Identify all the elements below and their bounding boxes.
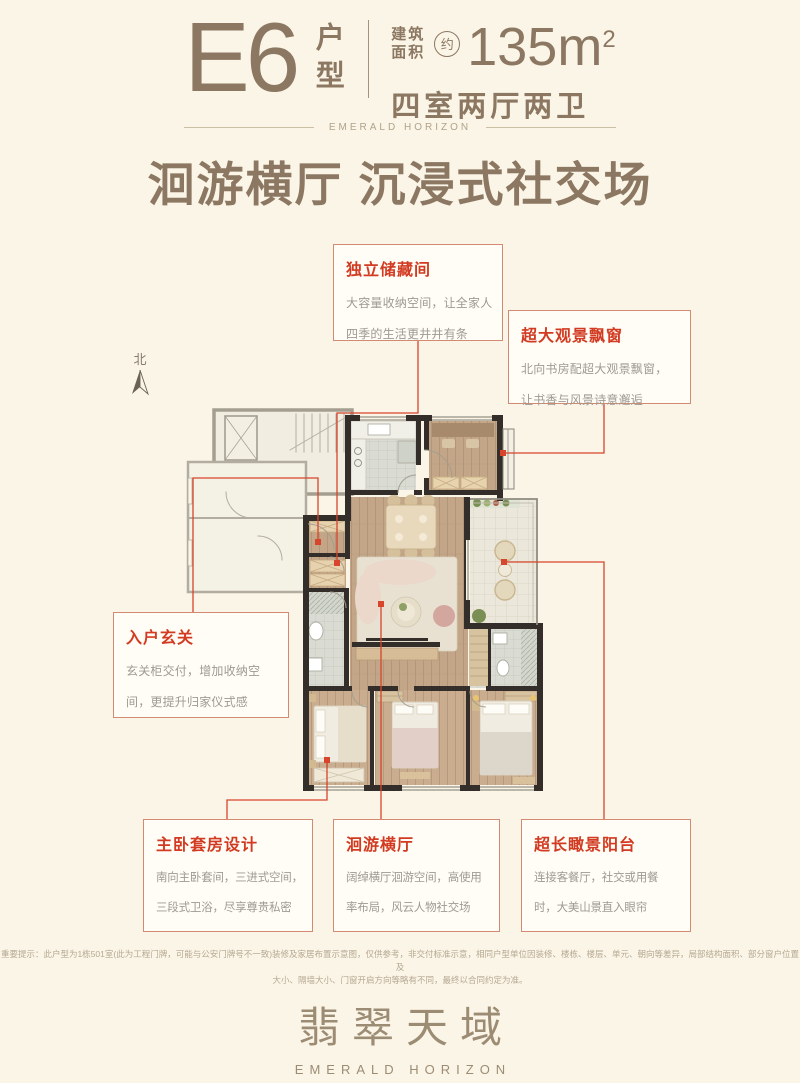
callout-text-line: 阔绰横厅洄游空间，高使用	[346, 869, 487, 885]
callout-text-line: 玄关柜交付，增加收纳空	[126, 662, 276, 679]
callout-title: 入户玄关	[126, 624, 276, 648]
leader-baywindow	[506, 404, 604, 453]
callout-master: 主卧套房设计 南向主卧套间，三进式空间， 三段式卫浴，尽享尊贵私密	[143, 819, 313, 932]
callout-storage: 独立储藏间 大容量收纳空间，让全家人 四季的生活更井井有条	[333, 244, 503, 341]
callout-balcony: 超长瞰景阳台 连接客餐厅，社交或用餐 时，大美山景直入眼帘	[521, 819, 691, 932]
bay-window	[503, 429, 514, 489]
callout-hall: 洄游横厅 阔绰横厅洄游空间，高使用 率布局，风云人物社交场	[333, 819, 500, 932]
callout-text-line: 连接客餐厅，社交或用餐	[534, 869, 678, 885]
callout-text-line: 间，更提升归家仪式感	[126, 693, 276, 710]
callout-title: 洄游横厅	[346, 831, 487, 855]
callout-baywindow: 超大观景飘窗 北向书房配超大观景飘窗， 让书香与风景诗意邂逅	[508, 310, 691, 404]
callout-text-line: 三段式卫浴，尽享尊贵私密	[156, 899, 300, 915]
callout-text-line: 率布局，风云人物社交场	[346, 899, 487, 915]
north-arrow-solid	[132, 370, 140, 394]
callout-title: 超大观景飘窗	[521, 322, 678, 346]
callout-title: 独立储藏间	[346, 256, 490, 280]
callout-text-line: 北向书房配超大观景飘窗，	[521, 360, 678, 377]
north-indicator: 北	[132, 352, 148, 394]
callout-text-line: 时，大美山景直入眼帘	[534, 899, 678, 915]
north-label: 北	[133, 352, 146, 367]
poster-page: E6 户型 建筑 面积 约 135m2 四室两厅两卫 EMERALD HORIZ…	[0, 0, 800, 1083]
callout-title: 超长瞰景阳台	[534, 831, 678, 855]
callout-text-line: 四季的生活更井井有条	[346, 325, 490, 342]
callout-text-line: 南向主卧套间，三进式空间，	[156, 869, 300, 885]
north-arrow-outline	[140, 370, 148, 394]
callout-text-line: 大容量收纳空间，让全家人	[346, 294, 490, 311]
callout-text-line: 让书香与风景诗意邂逅	[521, 391, 678, 408]
callout-foyer: 入户玄关 玄关柜交付，增加收纳空 间，更提升归家仪式感	[113, 612, 289, 718]
callout-title: 主卧套房设计	[156, 831, 300, 855]
